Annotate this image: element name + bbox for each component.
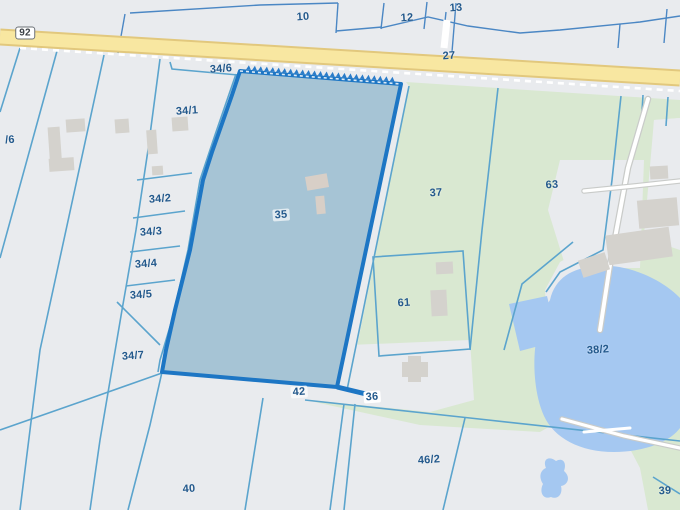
map-viewport[interactable]: 9210121327/634/634/134/234/334/434/534/7… <box>0 0 680 510</box>
map-canvas[interactable] <box>0 0 680 510</box>
driveway-gap <box>444 20 447 48</box>
